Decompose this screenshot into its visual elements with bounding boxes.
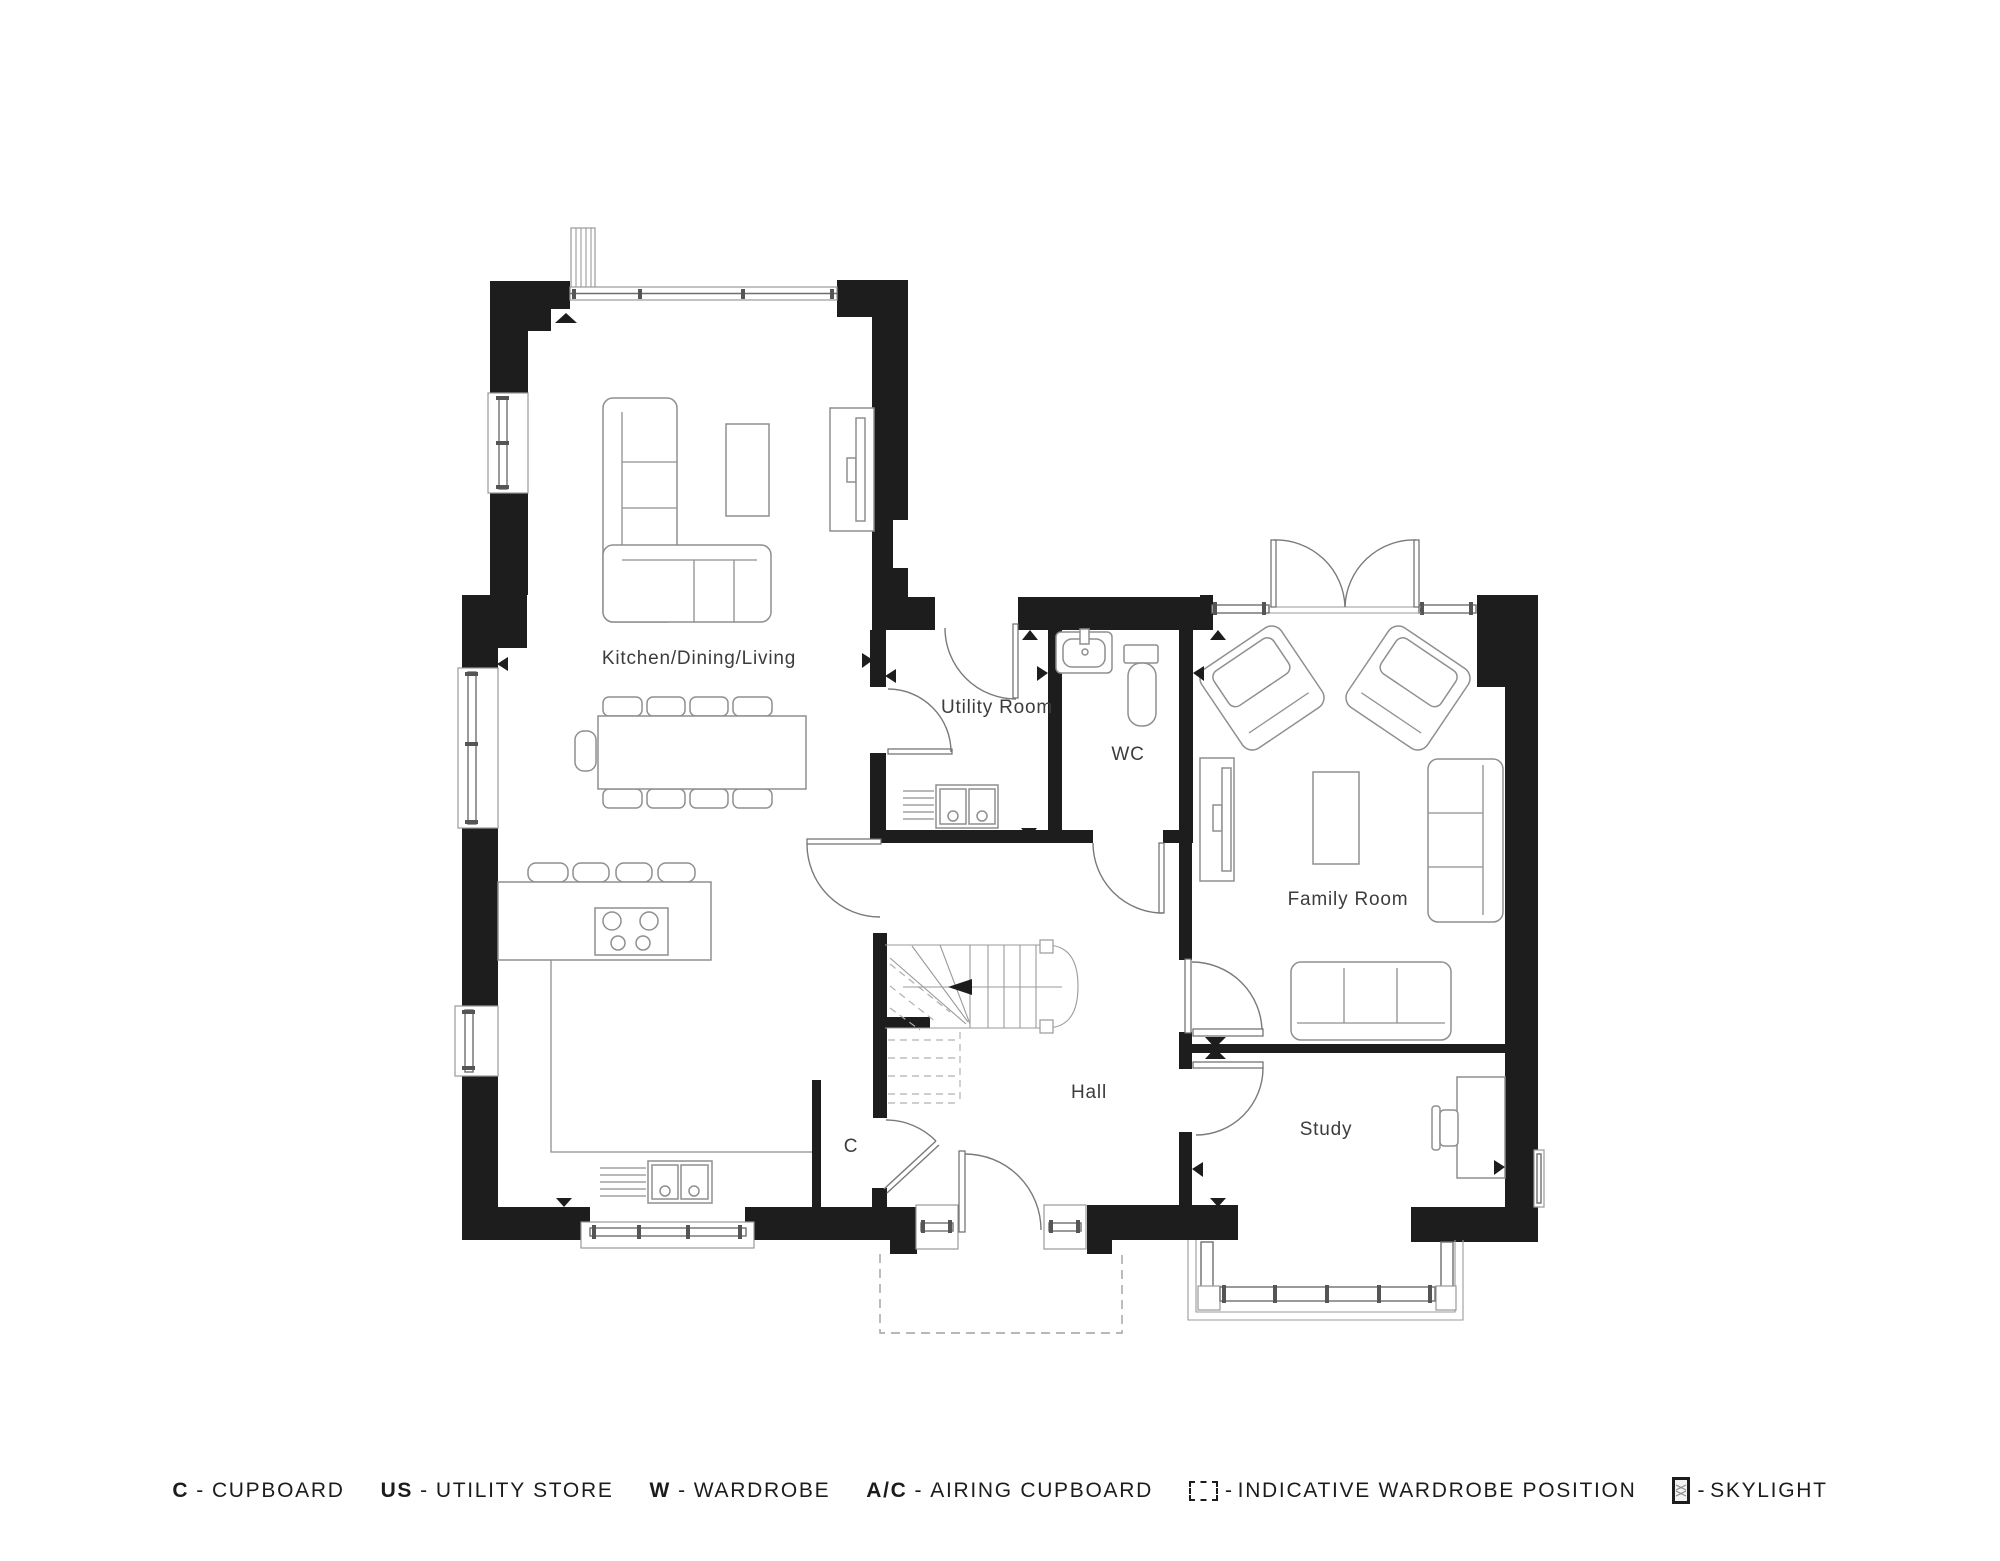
wc-door [1093,843,1164,913]
legend-item-airing-cupboard: A/C - AIRING CUPBOARD [866,1479,1153,1503]
legend-key: US [381,1479,414,1503]
furniture-wc [1056,629,1158,726]
furniture-dining [575,697,806,808]
floor-plan-page: Kitchen/Dining/Living Utility Room WC Fa… [0,0,2000,1561]
legend-label: INDICATIVE WARDROBE POSITION [1238,1479,1637,1503]
skylight-icon [1672,1477,1690,1504]
legend-label: UTILITY STORE [436,1479,614,1503]
wardrobe-position-icon [1189,1481,1218,1501]
cupboard-door [884,1120,939,1193]
legend-separator: - [420,1479,429,1503]
legend-item-cupboard: C - CUPBOARD [172,1479,344,1503]
room-label-cupboard: C [844,1136,859,1157]
legend-key: A/C [866,1479,907,1503]
room-label-kitchen: Kitchen/Dining/Living [602,648,796,669]
legend-label: WARDROBE [694,1479,831,1503]
legend-separator: - [1225,1479,1234,1503]
front-door [959,1151,1041,1232]
room-label-utility: Utility Room [941,697,1053,718]
chimney [571,228,595,290]
kitchen-hall-door [807,839,881,917]
legend-separator: - [196,1479,205,1503]
armchair-left [1195,621,1328,754]
furniture-kitchen [498,863,812,1203]
legend: C - CUPBOARD US - UTILITY STORE W - WARD… [0,1477,2000,1504]
room-label-family: Family Room [1288,889,1409,910]
room-label-wc: WC [1111,744,1144,765]
legend-item-wardrobe: W - WARDROBE [650,1479,831,1503]
legend-item-utility-store: US - UTILITY STORE [381,1479,614,1503]
room-label-hall: Hall [1071,1082,1107,1103]
floor-plan: Kitchen/Dining/Living Utility Room WC Fa… [0,0,2000,1561]
legend-key: C [172,1479,189,1503]
back-door [945,624,1018,699]
legend-label: CUPBOARD [212,1479,345,1503]
bay-window [1188,1240,1463,1320]
legend-label: SKYLIGHT [1710,1479,1827,1503]
room-label-study: Study [1300,1119,1353,1140]
legend-separator: - [1697,1479,1706,1503]
furniture-utility [903,785,998,828]
family-room-door [1185,959,1262,1033]
legend-item-wardrobe-position: - INDICATIVE WARDROBE POSITION [1189,1479,1637,1503]
furniture-living [603,398,874,622]
french-doors [1269,540,1421,613]
legend-key: W [650,1479,672,1503]
legend-item-skylight: - SKYLIGHT [1672,1477,1827,1504]
legend-separator: - [678,1479,687,1503]
legend-separator: - [915,1479,924,1503]
legend-label: AIRING CUPBOARD [930,1479,1153,1503]
furniture-family [1195,621,1503,1040]
porch-outline [880,1254,1122,1333]
armchair-right [1341,621,1474,754]
